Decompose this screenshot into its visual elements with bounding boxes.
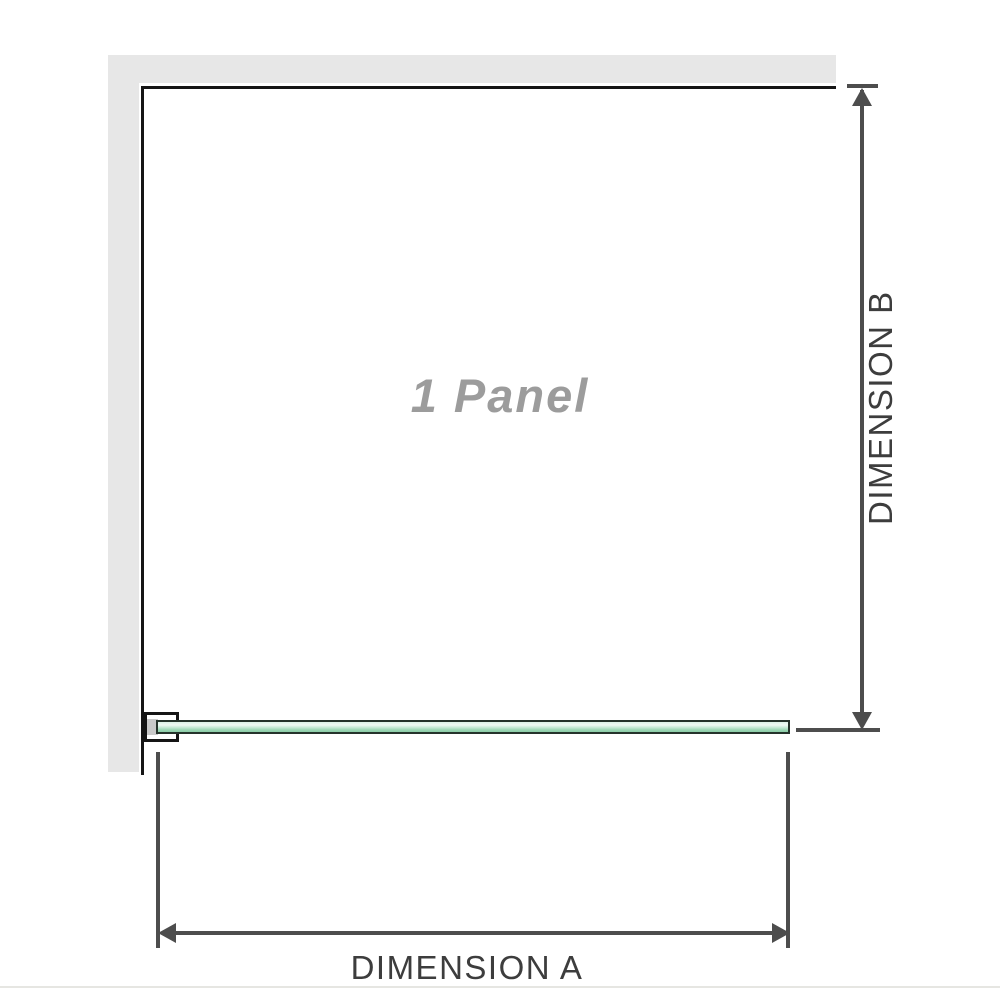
dimension-a-right-extension (786, 752, 790, 948)
arrow-down-icon (852, 712, 872, 730)
panel-frame-left-edge (141, 86, 144, 775)
arrow-left-icon (158, 923, 176, 943)
panel-frame-top-edge (141, 86, 836, 89)
panel-count-label: 1 Panel (290, 368, 710, 423)
arrow-up-icon (852, 88, 872, 106)
shower-panel-diagram: 1 Panel DIMENSION B DIMENSION A (0, 0, 1000, 1000)
dimension-a-left-extension (156, 752, 160, 948)
dimension-b-label: DIMENSION B (865, 305, 897, 525)
glass-panel (156, 720, 790, 734)
page-bottom-divider (0, 986, 1000, 988)
dimension-a-line (166, 931, 780, 935)
dimension-a-label: DIMENSION A (317, 949, 617, 987)
wall-left (108, 55, 139, 772)
wall-top (108, 55, 836, 83)
arrow-right-icon (772, 923, 790, 943)
